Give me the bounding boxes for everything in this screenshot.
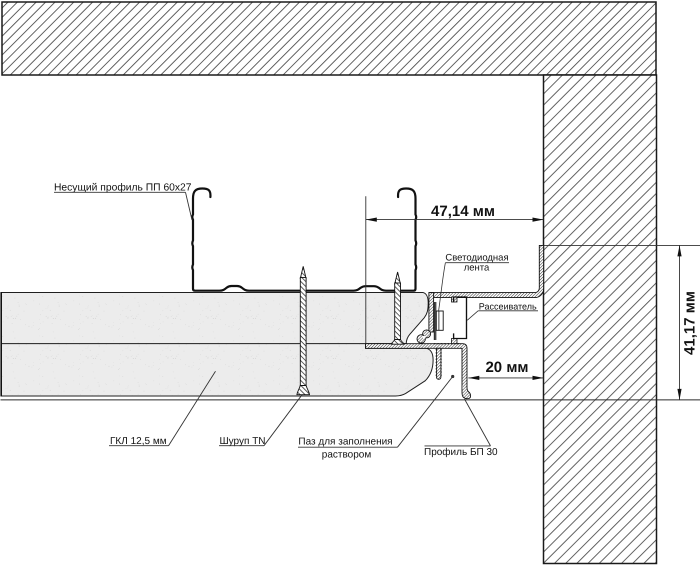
- svg-text:Паз для заполнения: Паз для заполнения: [298, 437, 392, 448]
- svg-text:41,17 мм: 41,17 мм: [681, 291, 698, 355]
- svg-text:ГКЛ 12,5 мм: ГКЛ 12,5 мм: [110, 436, 167, 447]
- svg-text:Рассеиватель: Рассеиватель: [479, 301, 537, 311]
- svg-text:лента: лента: [464, 263, 490, 274]
- svg-text:Шуруп TN: Шуруп TN: [220, 436, 266, 447]
- svg-text:раствором: раствором: [322, 450, 372, 461]
- svg-text:20 мм: 20 мм: [485, 359, 528, 376]
- svg-text:Несущий профиль ПП 60х27: Несущий профиль ПП 60х27: [54, 182, 192, 193]
- svg-text:Профиль БП 30: Профиль БП 30: [424, 447, 498, 458]
- svg-text:47,14 мм: 47,14 мм: [431, 203, 495, 220]
